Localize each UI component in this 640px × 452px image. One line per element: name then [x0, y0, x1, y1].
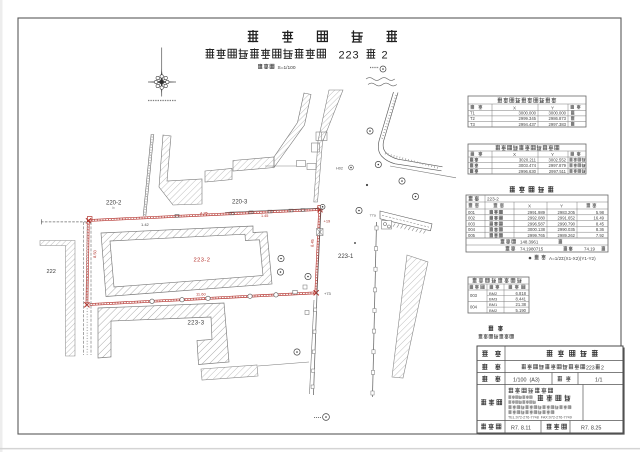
svg-text:8.441: 8.441 — [516, 297, 527, 302]
svg-text:Y: Y — [560, 204, 563, 209]
svg-text:BM3: BM3 — [489, 297, 498, 302]
svg-text:4.35: 4.35 — [200, 211, 209, 216]
svg-text:S=1/100: S=1/100 — [278, 65, 296, 71]
svg-text:X: X — [513, 105, 516, 110]
svg-text:21.38: 21.38 — [516, 302, 527, 307]
svg-text:001: 001 — [468, 210, 476, 215]
svg-text:8.50: 8.50 — [92, 249, 97, 258]
svg-text:16.49: 16.49 — [594, 216, 605, 221]
svg-text:004: 004 — [468, 227, 476, 232]
svg-text:003: 003 — [470, 293, 478, 298]
svg-text:5.98: 5.98 — [596, 210, 605, 215]
svg-text:2983.205: 2983.205 — [558, 210, 576, 215]
svg-text:77a: 77a — [370, 214, 377, 218]
svg-text:1.45: 1.45 — [261, 214, 268, 218]
svg-text:2991.989: 2991.989 — [528, 210, 546, 215]
svg-text:2: 2 — [601, 365, 604, 371]
svg-text:BM2: BM2 — [489, 291, 498, 296]
svg-text:A=1/2Σ(X1-X2)(Y1-Y2): A=1/2Σ(X1-X2)(Y1-Y2) — [549, 256, 596, 261]
svg-text:R7. 8.11: R7. 8.11 — [511, 426, 531, 432]
svg-text:TEL:072-276-7748 FAX:072-276-: TEL:072-276-7748 FAX:072-276-7749 — [508, 415, 572, 419]
svg-text:T1: T1 — [470, 111, 476, 116]
svg-text:148.3961: 148.3961 — [520, 239, 539, 244]
svg-text:b: b — [113, 206, 115, 210]
svg-text:BM1: BM1 — [489, 302, 498, 307]
svg-text:Y: Y — [551, 105, 554, 110]
svg-text:2997.511: 2997.511 — [549, 169, 567, 174]
svg-text:223-2: 223-2 — [487, 197, 499, 202]
svg-text:2990.035: 2990.035 — [558, 227, 576, 232]
svg-text:5.190: 5.190 — [516, 308, 527, 313]
svg-text:74.19: 74.19 — [584, 246, 596, 251]
svg-text:1/1: 1/1 — [595, 377, 603, 383]
svg-text:2989.262: 2989.262 — [558, 233, 576, 238]
svg-text:3000.000: 3000.000 — [519, 111, 537, 116]
svg-text:2986.873: 2986.873 — [549, 116, 567, 121]
svg-text:7.92: 7.92 — [596, 233, 605, 238]
svg-text:223: 223 — [586, 365, 595, 371]
svg-text:004: 004 — [470, 304, 478, 309]
svg-text:X: X — [513, 152, 516, 157]
svg-text:2990.790: 2990.790 — [558, 221, 576, 226]
svg-text:X: X — [528, 204, 531, 209]
svg-text:3002.552: 3002.552 — [549, 158, 567, 163]
svg-text:+19: +19 — [324, 219, 332, 224]
svg-text:1.42: 1.42 — [141, 222, 150, 227]
svg-text:BM2: BM2 — [489, 308, 498, 313]
svg-text:2999.765: 2999.765 — [528, 233, 546, 238]
svg-text:223-2: 223-2 — [194, 258, 211, 264]
svg-text:T3: T3 — [470, 122, 476, 127]
svg-text:2992.080: 2992.080 — [528, 216, 546, 221]
svg-text:H02: H02 — [336, 167, 343, 171]
svg-text:3000.138: 3000.138 — [528, 227, 546, 232]
svg-text:002: 002 — [468, 216, 476, 221]
svg-text:2997.879: 2997.879 — [549, 163, 567, 168]
svg-text:8.45: 8.45 — [596, 221, 605, 226]
svg-text:2: 2 — [382, 49, 388, 61]
svg-text:8.36: 8.36 — [596, 227, 605, 232]
svg-text:222: 222 — [47, 269, 56, 275]
svg-text:003: 003 — [468, 221, 476, 226]
svg-text:+73: +73 — [324, 291, 332, 296]
svg-text:8.45: 8.45 — [310, 238, 315, 247]
svg-text:223-1: 223-1 — [338, 254, 354, 260]
svg-text:220-3: 220-3 — [232, 200, 248, 206]
svg-text:11.60: 11.60 — [196, 292, 206, 297]
svg-text:T2: T2 — [470, 116, 476, 121]
svg-text:2999.345: 2999.345 — [519, 116, 537, 121]
svg-text:Y: Y — [551, 152, 554, 157]
svg-text:1/100 (A3): 1/100 (A3) — [513, 377, 540, 383]
svg-text:223-3: 223-3 — [188, 321, 205, 327]
svg-text:3000.000: 3000.000 — [549, 111, 567, 116]
svg-text:2997.383: 2997.383 — [549, 122, 567, 127]
svg-text:2991.652: 2991.652 — [558, 216, 576, 221]
svg-text:74.1980715: 74.1980715 — [520, 246, 544, 251]
svg-text:2996.630: 2996.630 — [519, 169, 537, 174]
svg-text:3003.474: 3003.474 — [519, 163, 537, 168]
svg-text:223: 223 — [339, 49, 360, 61]
svg-text:R7. 8.25: R7. 8.25 — [581, 426, 601, 432]
svg-text:3020.211: 3020.211 — [519, 158, 537, 163]
svg-text:2996.587: 2996.587 — [528, 221, 546, 226]
svg-text:2994.437: 2994.437 — [519, 122, 537, 127]
svg-text:005: 005 — [468, 233, 476, 238]
svg-text:6.818: 6.818 — [516, 291, 527, 296]
